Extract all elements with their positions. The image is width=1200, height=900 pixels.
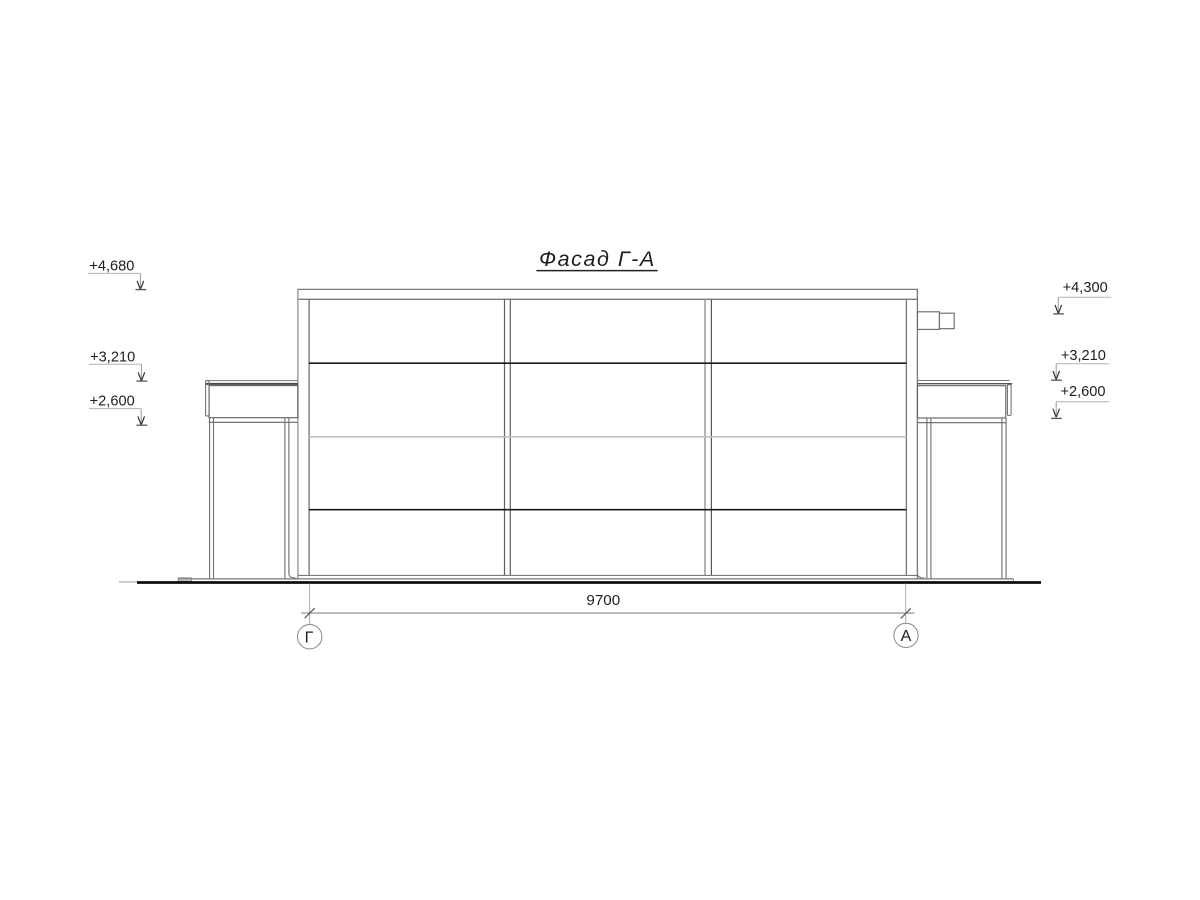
svg-text:Г: Г — [305, 629, 314, 646]
svg-text:+3,210: +3,210 — [90, 349, 135, 365]
svg-text:А: А — [901, 628, 912, 645]
svg-text:9700: 9700 — [586, 592, 620, 609]
svg-text:+4,300: +4,300 — [1063, 280, 1108, 296]
svg-text:+2,600: +2,600 — [1060, 384, 1105, 400]
svg-text:Фасад Г-А: Фасад Г-А — [539, 247, 656, 271]
svg-text:+2,600: +2,600 — [90, 394, 135, 410]
svg-text:+3,210: +3,210 — [1061, 348, 1106, 364]
svg-text:+4,680: +4,680 — [89, 259, 134, 275]
